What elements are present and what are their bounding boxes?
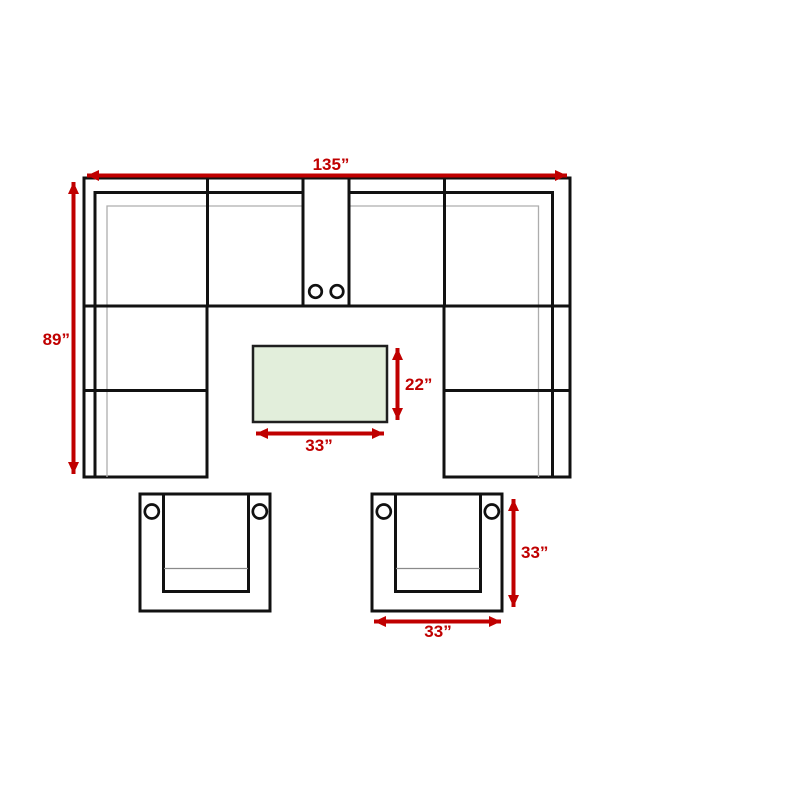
cup-holder-icon [309,285,322,298]
dimension-label-chair-depth: 33” [521,543,548,562]
dimension-label-table-width: 33” [305,436,332,455]
cup-holder-icon [145,505,159,519]
coffee-table [253,346,387,422]
coffee-table-top [253,346,387,422]
dimension-label-chair-width: 33” [424,622,451,641]
furniture-dimension-diagram: 135” 89” 22” 33” 33” 33” [0,0,800,800]
cup-holder-icon [253,505,267,519]
dimension-label-sofa-width: 135” [313,155,350,174]
cup-holder-icon [377,505,391,519]
armchair-right [372,494,502,611]
dimension-label-table-depth: 22” [405,375,432,394]
cup-holder-icon [331,285,344,298]
dimension-label-sofa-depth: 89” [43,330,70,349]
diagram-canvas: 135” 89” 22” 33” 33” 33” [0,0,800,800]
armchair-left [140,494,270,611]
cup-holder-icon [485,505,499,519]
